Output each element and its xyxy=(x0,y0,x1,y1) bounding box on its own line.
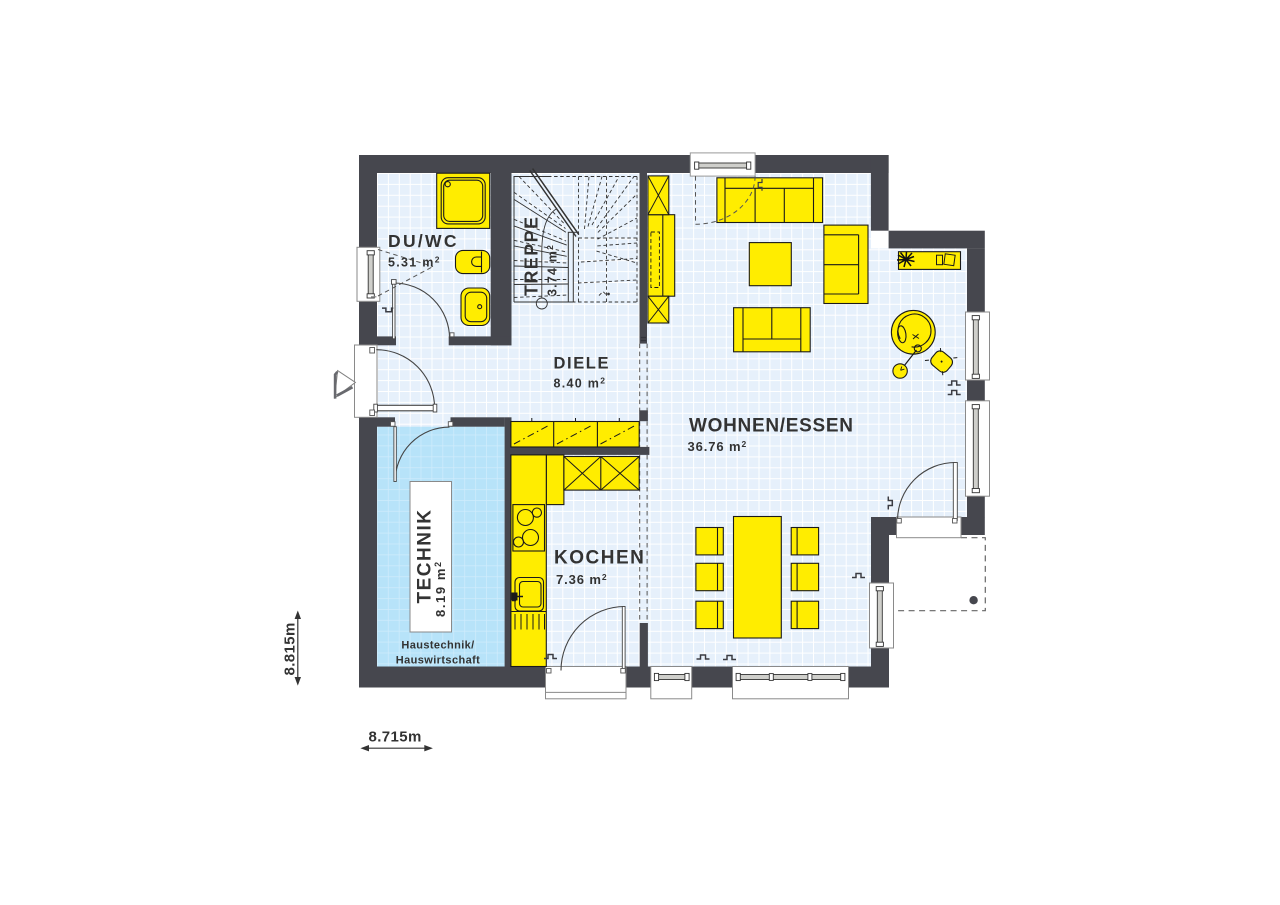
svg-text:8.40 m2: 8.40 m2 xyxy=(554,376,607,391)
svg-text:7.36 m2: 7.36 m2 xyxy=(556,572,608,587)
svg-text:Haustechnik/: Haustechnik/ xyxy=(401,640,474,652)
svg-text:DIELE: DIELE xyxy=(554,355,611,373)
svg-text:DU/WC: DU/WC xyxy=(388,231,459,251)
svg-text:Hauswirtschaft: Hauswirtschaft xyxy=(396,655,480,667)
svg-text:8.815m: 8.815m xyxy=(281,622,298,675)
svg-text:36.76 m2: 36.76 m2 xyxy=(688,439,748,454)
svg-text:3.74 m2: 3.74 m2 xyxy=(545,244,560,296)
svg-text:8.19 m2: 8.19 m2 xyxy=(433,560,448,617)
svg-text:KOCHEN: KOCHEN xyxy=(554,548,645,569)
svg-text:8.715m: 8.715m xyxy=(369,729,422,746)
svg-text:WOHNEN/ESSEN: WOHNEN/ESSEN xyxy=(689,416,854,437)
svg-text:5.31 m2: 5.31 m2 xyxy=(388,255,441,270)
svg-text:TREPPE: TREPPE xyxy=(522,216,542,296)
